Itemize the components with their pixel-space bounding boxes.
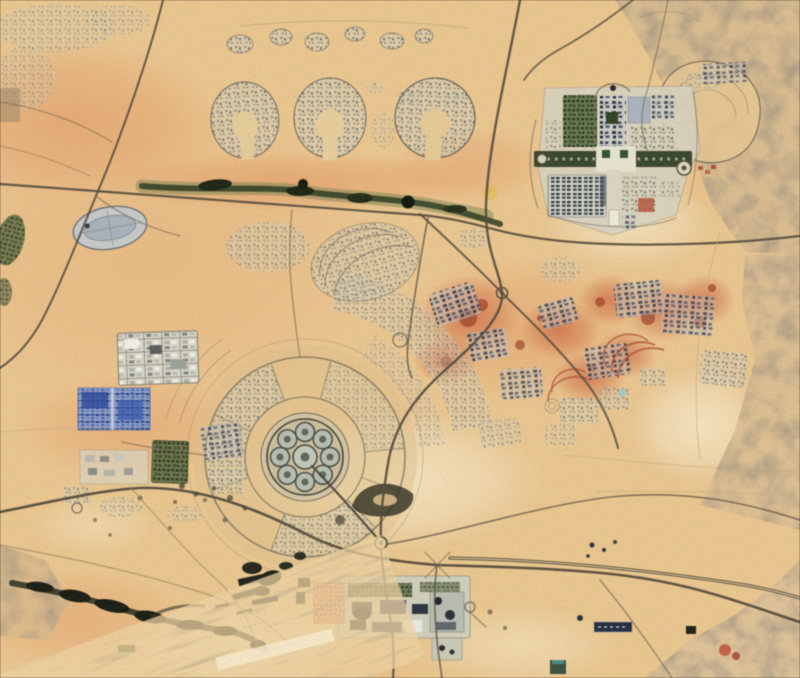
satellite-image — [0, 0, 800, 678]
image-grain — [0, 0, 800, 678]
satellite-image-viewport — [0, 0, 800, 678]
